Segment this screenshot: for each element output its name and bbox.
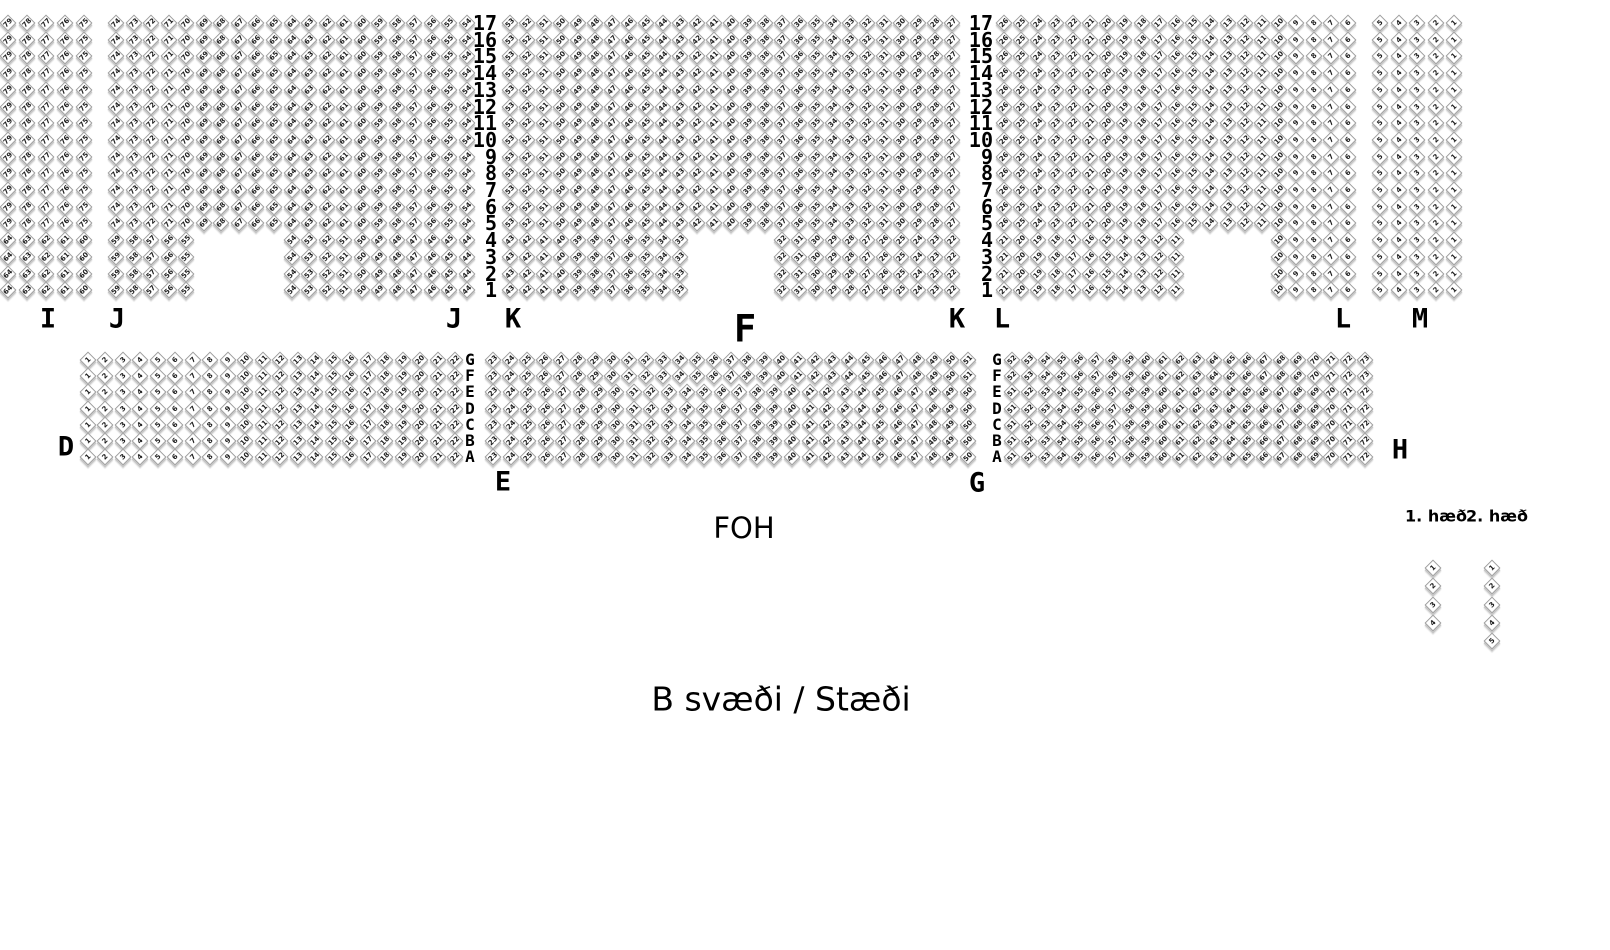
seat[interactable]: 29: [590, 416, 607, 433]
seat[interactable]: 67: [230, 148, 247, 165]
seat[interactable]: 67: [230, 15, 247, 32]
seat[interactable]: 47: [406, 248, 423, 265]
seat[interactable]: 31: [876, 148, 893, 165]
seat[interactable]: 43: [836, 384, 853, 401]
seat[interactable]: 19: [1116, 115, 1133, 132]
seat[interactable]: 63: [1205, 416, 1222, 433]
seat[interactable]: 51: [960, 368, 977, 385]
seat[interactable]: 28: [927, 48, 944, 65]
seat[interactable]: 16: [1082, 282, 1099, 299]
seat[interactable]: 5: [1372, 15, 1389, 32]
seat[interactable]: 48: [587, 98, 604, 115]
seat[interactable]: 48: [587, 215, 604, 232]
seat[interactable]: 22: [1064, 148, 1081, 165]
seat[interactable]: 21: [429, 352, 446, 369]
seat[interactable]: 43: [824, 352, 841, 369]
seat[interactable]: 44: [655, 182, 672, 199]
seat[interactable]: 44: [655, 131, 672, 148]
seat[interactable]: 79: [0, 198, 16, 215]
seat[interactable]: 56: [1088, 416, 1105, 433]
seat[interactable]: 41: [801, 416, 818, 433]
seat[interactable]: 32: [774, 282, 791, 299]
seat[interactable]: 32: [643, 449, 660, 466]
seat[interactable]: 13: [1219, 31, 1236, 48]
seat[interactable]: 33: [672, 282, 689, 299]
seat[interactable]: 64: [1222, 416, 1239, 433]
seat[interactable]: 58: [125, 248, 142, 265]
seat[interactable]: 20: [1099, 48, 1116, 65]
seat[interactable]: 68: [1289, 384, 1306, 401]
seat[interactable]: 48: [388, 265, 405, 282]
seat[interactable]: 4: [1390, 81, 1407, 98]
seat[interactable]: 37: [604, 248, 621, 265]
seat[interactable]: 30: [608, 400, 625, 417]
seat[interactable]: 24: [1030, 98, 1047, 115]
seat[interactable]: 2: [1427, 81, 1444, 98]
seat[interactable]: 62: [318, 182, 335, 199]
seat[interactable]: 79: [0, 165, 16, 182]
seat[interactable]: 60: [353, 15, 370, 32]
seat[interactable]: 77: [38, 198, 55, 215]
seat[interactable]: 51: [536, 148, 553, 165]
seat[interactable]: 62: [318, 48, 335, 65]
seat[interactable]: 49: [570, 65, 587, 82]
seat[interactable]: 36: [791, 48, 808, 65]
seat[interactable]: 33: [672, 248, 689, 265]
seat[interactable]: 48: [924, 416, 941, 433]
seat[interactable]: 72: [1357, 433, 1374, 450]
seat[interactable]: 30: [808, 265, 825, 282]
seat[interactable]: 11: [1254, 98, 1271, 115]
seat[interactable]: 10: [1271, 81, 1288, 98]
seat[interactable]: 53: [502, 148, 519, 165]
seat[interactable]: 12: [272, 433, 289, 450]
seat[interactable]: 68: [1272, 368, 1289, 385]
seat[interactable]: 47: [604, 15, 621, 32]
seat[interactable]: 13: [1219, 81, 1236, 98]
seat[interactable]: 43: [502, 282, 519, 299]
seat[interactable]: 18: [1133, 65, 1150, 82]
seat[interactable]: 9: [1288, 15, 1305, 32]
seat[interactable]: 46: [621, 81, 638, 98]
seat[interactable]: 57: [406, 115, 423, 132]
seat[interactable]: 7: [1322, 48, 1339, 65]
seat[interactable]: 58: [1104, 352, 1121, 369]
seat[interactable]: 18: [377, 368, 394, 385]
seat[interactable]: 20: [1099, 198, 1116, 215]
seat[interactable]: 60: [353, 31, 370, 48]
seat[interactable]: 72: [143, 65, 160, 82]
seat[interactable]: 43: [672, 131, 689, 148]
seat[interactable]: 53: [301, 265, 318, 282]
seat[interactable]: 63: [301, 165, 318, 182]
seat[interactable]: 76: [57, 98, 74, 115]
seat[interactable]: 76: [57, 31, 74, 48]
seat[interactable]: 8: [1305, 165, 1322, 182]
seat[interactable]: 7: [1322, 232, 1339, 249]
seat[interactable]: 69: [1289, 352, 1306, 369]
seat[interactable]: 30: [893, 65, 910, 82]
seat[interactable]: 71: [1323, 368, 1340, 385]
seat[interactable]: 15: [1099, 282, 1116, 299]
seat[interactable]: 71: [160, 98, 177, 115]
seat[interactable]: 34: [825, 131, 842, 148]
seat[interactable]: 36: [791, 165, 808, 182]
seat[interactable]: 11: [1254, 81, 1271, 98]
seat[interactable]: 33: [842, 65, 859, 82]
seat[interactable]: 5: [1372, 265, 1389, 282]
seat[interactable]: 24: [1030, 215, 1047, 232]
seat[interactable]: 23: [1047, 15, 1064, 32]
seat[interactable]: 77: [38, 115, 55, 132]
seat[interactable]: 6: [1340, 198, 1357, 215]
seat[interactable]: 73: [1357, 352, 1374, 369]
seat[interactable]: 26: [996, 98, 1013, 115]
seat[interactable]: 68: [213, 15, 230, 32]
seat[interactable]: 63: [301, 31, 318, 48]
seat[interactable]: 59: [108, 248, 125, 265]
seat[interactable]: 54: [283, 232, 300, 249]
seat[interactable]: 40: [723, 81, 740, 98]
seat[interactable]: 72: [143, 215, 160, 232]
seat[interactable]: 71: [160, 182, 177, 199]
seat[interactable]: 6: [1340, 265, 1357, 282]
seat[interactable]: 25: [1013, 182, 1030, 199]
seat[interactable]: 36: [713, 416, 730, 433]
seat[interactable]: 9: [1288, 182, 1305, 199]
seat[interactable]: 23: [1047, 65, 1064, 82]
seat[interactable]: 1: [80, 384, 97, 401]
seat[interactable]: 58: [1121, 449, 1138, 466]
seat[interactable]: 66: [248, 31, 265, 48]
seat[interactable]: 53: [1020, 368, 1037, 385]
seat[interactable]: 41: [706, 131, 723, 148]
seat[interactable]: 7: [1322, 265, 1339, 282]
seat[interactable]: 44: [854, 400, 871, 417]
seat[interactable]: 5: [1372, 98, 1389, 115]
seat[interactable]: 74: [108, 115, 125, 132]
seat[interactable]: 54: [1054, 400, 1071, 417]
seat[interactable]: 26: [537, 400, 554, 417]
seat[interactable]: 35: [638, 282, 655, 299]
seat[interactable]: 17: [1064, 265, 1081, 282]
seat[interactable]: 78: [19, 165, 36, 182]
seat[interactable]: 17: [359, 416, 376, 433]
seat[interactable]: 57: [406, 148, 423, 165]
seat[interactable]: 48: [909, 352, 926, 369]
seat[interactable]: 39: [740, 115, 757, 132]
seat[interactable]: 55: [441, 15, 458, 32]
seat[interactable]: 22: [1064, 165, 1081, 182]
seat[interactable]: 21: [1082, 182, 1099, 199]
seat[interactable]: 7: [184, 368, 201, 385]
seat[interactable]: 56: [423, 115, 440, 132]
seat[interactable]: 40: [773, 368, 790, 385]
seat[interactable]: 69: [195, 182, 212, 199]
seat[interactable]: 66: [248, 215, 265, 232]
seat[interactable]: 5: [149, 368, 166, 385]
seat[interactable]: 9: [219, 352, 236, 369]
seat[interactable]: 40: [723, 131, 740, 148]
seat[interactable]: 69: [195, 215, 212, 232]
seat[interactable]: 66: [1256, 449, 1273, 466]
seat[interactable]: 2: [97, 368, 114, 385]
seat[interactable]: 67: [230, 31, 247, 48]
seat[interactable]: 31: [791, 282, 808, 299]
seat[interactable]: 60: [353, 81, 370, 98]
seat[interactable]: 30: [808, 248, 825, 265]
seat[interactable]: 59: [1138, 384, 1155, 401]
seat[interactable]: 40: [784, 416, 801, 433]
seat[interactable]: 19: [1030, 282, 1047, 299]
seat[interactable]: 43: [836, 433, 853, 450]
seat[interactable]: 72: [1357, 416, 1374, 433]
seat[interactable]: 71: [160, 15, 177, 32]
seat[interactable]: 25: [520, 449, 537, 466]
seat[interactable]: 6: [1340, 282, 1357, 299]
seat[interactable]: 27: [859, 282, 876, 299]
seat[interactable]: 47: [604, 81, 621, 98]
seat[interactable]: 6: [1340, 148, 1357, 165]
seat[interactable]: 7: [1322, 282, 1339, 299]
seat[interactable]: 73: [125, 81, 142, 98]
seat[interactable]: 5: [1372, 232, 1389, 249]
seat[interactable]: 23: [1047, 81, 1064, 98]
seat[interactable]: 23: [927, 265, 944, 282]
seat[interactable]: 4: [1390, 65, 1407, 82]
seat[interactable]: 49: [942, 433, 959, 450]
seat[interactable]: 61: [336, 131, 353, 148]
seat[interactable]: 73: [125, 65, 142, 82]
seat[interactable]: 56: [423, 15, 440, 32]
seat[interactable]: 43: [672, 31, 689, 48]
seat[interactable]: 30: [608, 433, 625, 450]
seat[interactable]: 20: [1099, 31, 1116, 48]
legend-seat[interactable]: 1: [1484, 560, 1501, 577]
seat[interactable]: 75: [76, 98, 93, 115]
legend-seat[interactable]: 3: [1425, 596, 1442, 613]
seat[interactable]: 72: [143, 98, 160, 115]
seat[interactable]: 11: [1254, 215, 1271, 232]
seat[interactable]: 10: [237, 352, 254, 369]
seat[interactable]: 67: [230, 115, 247, 132]
seat[interactable]: 70: [178, 148, 195, 165]
seat[interactable]: 26: [996, 31, 1013, 48]
seat[interactable]: 5: [149, 352, 166, 369]
seat[interactable]: 42: [819, 384, 836, 401]
seat[interactable]: 63: [1205, 384, 1222, 401]
seat[interactable]: 1: [1446, 282, 1463, 299]
seat[interactable]: 16: [342, 368, 359, 385]
seat[interactable]: 55: [1071, 384, 1088, 401]
seat[interactable]: 45: [638, 165, 655, 182]
seat[interactable]: 47: [604, 131, 621, 148]
seat[interactable]: 77: [38, 98, 55, 115]
seat[interactable]: 1: [80, 433, 97, 450]
seat[interactable]: 10: [237, 400, 254, 417]
seat[interactable]: 42: [689, 65, 706, 82]
seat[interactable]: 7: [1322, 81, 1339, 98]
seat[interactable]: 26: [996, 182, 1013, 199]
seat[interactable]: 43: [672, 148, 689, 165]
seat[interactable]: 60: [76, 282, 93, 299]
seat[interactable]: 20: [412, 416, 429, 433]
seat[interactable]: 64: [283, 65, 300, 82]
seat[interactable]: 66: [1256, 416, 1273, 433]
seat[interactable]: 29: [910, 148, 927, 165]
seat[interactable]: 63: [301, 98, 318, 115]
seat[interactable]: 64: [283, 215, 300, 232]
seat[interactable]: 28: [927, 215, 944, 232]
seat[interactable]: 58: [388, 115, 405, 132]
seat[interactable]: 65: [1239, 433, 1256, 450]
seat[interactable]: 9: [1288, 265, 1305, 282]
seat[interactable]: 76: [57, 48, 74, 65]
seat[interactable]: 62: [318, 31, 335, 48]
seat[interactable]: 52: [519, 31, 536, 48]
seat[interactable]: 53: [502, 65, 519, 82]
seat[interactable]: 29: [825, 265, 842, 282]
seat[interactable]: 25: [1013, 15, 1030, 32]
seat[interactable]: 3: [1409, 282, 1426, 299]
seat[interactable]: 59: [371, 131, 388, 148]
seat[interactable]: 6: [1340, 232, 1357, 249]
seat[interactable]: 57: [406, 81, 423, 98]
seat[interactable]: 33: [842, 148, 859, 165]
seat[interactable]: 45: [638, 131, 655, 148]
seat[interactable]: 24: [1030, 165, 1047, 182]
seat[interactable]: 18: [1133, 148, 1150, 165]
seat[interactable]: 35: [808, 165, 825, 182]
seat[interactable]: 70: [1323, 384, 1340, 401]
seat[interactable]: 9: [1288, 81, 1305, 98]
seat[interactable]: 25: [1013, 165, 1030, 182]
seat[interactable]: 38: [587, 232, 604, 249]
seat[interactable]: 32: [859, 215, 876, 232]
seat[interactable]: 21: [996, 232, 1013, 249]
seat[interactable]: 37: [774, 15, 791, 32]
seat[interactable]: 10: [1271, 98, 1288, 115]
seat[interactable]: 69: [195, 31, 212, 48]
seat[interactable]: 78: [19, 98, 36, 115]
seat[interactable]: 21: [1082, 15, 1099, 32]
seat[interactable]: 73: [125, 15, 142, 32]
seat[interactable]: 63: [1205, 449, 1222, 466]
seat[interactable]: 43: [672, 15, 689, 32]
seat[interactable]: 65: [265, 182, 282, 199]
seat[interactable]: 79: [0, 148, 16, 165]
seat[interactable]: 45: [638, 148, 655, 165]
seat[interactable]: 60: [1155, 416, 1172, 433]
seat[interactable]: 69: [195, 148, 212, 165]
seat[interactable]: 46: [621, 15, 638, 32]
seat[interactable]: 28: [927, 98, 944, 115]
seat[interactable]: 68: [213, 215, 230, 232]
seat[interactable]: 35: [808, 148, 825, 165]
seat[interactable]: 51: [536, 81, 553, 98]
seat[interactable]: 73: [125, 98, 142, 115]
seat[interactable]: 8: [1305, 198, 1322, 215]
seat[interactable]: 23: [1047, 131, 1064, 148]
seat[interactable]: 61: [57, 282, 74, 299]
seat[interactable]: 53: [502, 81, 519, 98]
seat[interactable]: 32: [859, 198, 876, 215]
seat[interactable]: 33: [660, 433, 677, 450]
seat[interactable]: 17: [1150, 115, 1167, 132]
seat[interactable]: 21: [996, 282, 1013, 299]
seat[interactable]: 49: [570, 182, 587, 199]
seat[interactable]: 55: [178, 282, 195, 299]
seat[interactable]: 18: [377, 449, 394, 466]
seat[interactable]: 5: [149, 400, 166, 417]
seat[interactable]: 53: [502, 98, 519, 115]
seat[interactable]: 4: [132, 416, 149, 433]
seat[interactable]: 6: [1340, 81, 1357, 98]
seat[interactable]: 28: [927, 81, 944, 98]
seat[interactable]: 69: [1306, 384, 1323, 401]
seat[interactable]: 66: [248, 65, 265, 82]
seat[interactable]: 77: [38, 131, 55, 148]
seat[interactable]: 75: [76, 198, 93, 215]
seat[interactable]: 47: [604, 165, 621, 182]
seat[interactable]: 34: [671, 368, 688, 385]
seat[interactable]: 19: [394, 449, 411, 466]
seat[interactable]: 45: [638, 115, 655, 132]
seat[interactable]: 63: [301, 48, 318, 65]
seat[interactable]: 1: [1446, 15, 1463, 32]
seat[interactable]: 69: [195, 48, 212, 65]
seat[interactable]: 69: [195, 15, 212, 32]
seat[interactable]: 16: [1168, 48, 1185, 65]
seat[interactable]: 55: [1071, 433, 1088, 450]
seat[interactable]: 21: [429, 433, 446, 450]
seat[interactable]: 46: [621, 198, 638, 215]
seat[interactable]: 17: [1150, 198, 1167, 215]
seat[interactable]: 66: [1256, 433, 1273, 450]
seat[interactable]: 72: [143, 165, 160, 182]
seat[interactable]: 65: [265, 215, 282, 232]
seat[interactable]: 51: [536, 15, 553, 32]
seat[interactable]: 39: [756, 352, 773, 369]
seat[interactable]: 18: [1133, 31, 1150, 48]
seat[interactable]: 53: [502, 215, 519, 232]
seat[interactable]: 4: [1390, 115, 1407, 132]
seat[interactable]: 23: [927, 282, 944, 299]
seat[interactable]: 4: [132, 368, 149, 385]
seat[interactable]: 61: [336, 182, 353, 199]
seat[interactable]: 20: [1099, 115, 1116, 132]
seat[interactable]: 3: [114, 449, 131, 466]
seat[interactable]: 38: [748, 400, 765, 417]
seat[interactable]: 57: [406, 131, 423, 148]
seat[interactable]: 32: [637, 352, 654, 369]
seat[interactable]: 41: [706, 182, 723, 199]
seat[interactable]: 59: [371, 98, 388, 115]
seat[interactable]: 3: [114, 352, 131, 369]
seat[interactable]: 27: [552, 368, 569, 385]
seat[interactable]: 19: [1116, 215, 1133, 232]
seat[interactable]: 51: [536, 182, 553, 199]
seat[interactable]: 3: [114, 400, 131, 417]
seat[interactable]: 19: [1116, 98, 1133, 115]
seat[interactable]: 46: [889, 433, 906, 450]
seat[interactable]: 21: [1082, 31, 1099, 48]
seat[interactable]: 10: [237, 433, 254, 450]
seat[interactable]: 10: [1271, 248, 1288, 265]
seat[interactable]: 36: [791, 65, 808, 82]
seat[interactable]: 58: [388, 165, 405, 182]
seat[interactable]: 61: [336, 48, 353, 65]
